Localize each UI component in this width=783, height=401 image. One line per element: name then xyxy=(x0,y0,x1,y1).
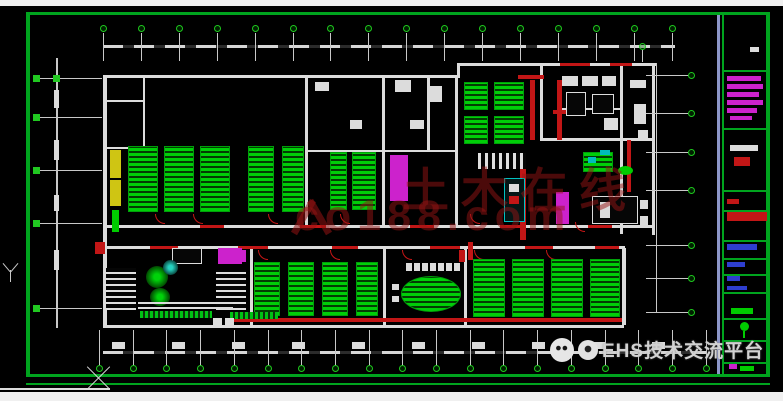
meeting-table xyxy=(464,116,488,144)
plan-shape xyxy=(595,246,619,249)
plan-shape xyxy=(225,318,234,326)
column xyxy=(530,80,535,140)
plan-shape xyxy=(600,202,610,218)
plan-shape xyxy=(734,157,750,166)
plan-shape xyxy=(53,75,60,82)
axis-bubble xyxy=(500,365,507,372)
plan-shape xyxy=(33,167,40,174)
plan-shape xyxy=(518,75,544,79)
chair xyxy=(438,263,444,271)
extension-line xyxy=(103,33,104,61)
workstation-cluster xyxy=(288,262,314,316)
fixture xyxy=(582,76,598,86)
chair xyxy=(454,263,460,271)
extension-line xyxy=(330,33,331,61)
page-bottom-strip xyxy=(0,392,783,401)
axis-bubble xyxy=(96,365,103,372)
workstation-cluster xyxy=(551,259,583,317)
chair xyxy=(640,216,648,225)
meeting-table xyxy=(464,82,488,110)
door-arc xyxy=(470,214,480,224)
extension-line xyxy=(436,330,437,366)
plan-shape xyxy=(622,248,626,325)
plan-shape xyxy=(731,308,753,314)
axis-bubble xyxy=(555,25,562,32)
door-arc xyxy=(575,222,585,232)
page-top-strip xyxy=(0,0,783,6)
hedge xyxy=(230,312,278,319)
plan-shape xyxy=(103,100,145,102)
frame-right xyxy=(766,12,770,377)
extension-line xyxy=(646,312,688,313)
plan-shape xyxy=(455,78,458,226)
meeting-table xyxy=(494,82,524,110)
cabinet xyxy=(556,192,569,224)
extension-line xyxy=(646,245,688,246)
titleblock-steel-line xyxy=(717,15,720,374)
chair xyxy=(422,263,428,271)
plan-shape xyxy=(588,157,596,163)
axis-bubble xyxy=(197,365,204,372)
plan-shape xyxy=(410,120,424,129)
extension-line xyxy=(470,330,471,366)
axis-bubble xyxy=(534,365,541,372)
frame-top xyxy=(26,12,770,15)
dimension-text xyxy=(352,342,365,349)
plan-shape xyxy=(383,249,386,325)
workstation-cluster xyxy=(164,146,194,212)
dimension-text xyxy=(532,342,545,349)
plan-shape xyxy=(638,130,648,138)
extension-line xyxy=(646,113,688,114)
workstation-cluster xyxy=(356,262,378,316)
cabinet xyxy=(218,248,242,264)
axis-bubble xyxy=(290,25,297,32)
axis-bubble xyxy=(669,365,676,372)
axis-bubble xyxy=(252,25,259,32)
plan-shape xyxy=(610,63,632,66)
dimension-text xyxy=(232,342,245,349)
staircase xyxy=(106,268,136,310)
plan-shape xyxy=(213,318,222,326)
extension-line xyxy=(255,33,256,61)
axis-bubble xyxy=(688,309,695,316)
plan-shape xyxy=(727,276,740,281)
plan-shape xyxy=(315,82,329,91)
plan-shape xyxy=(430,246,460,249)
extension-line xyxy=(402,330,403,366)
dimension-text xyxy=(112,342,125,349)
plant xyxy=(163,260,178,275)
axis-bubble xyxy=(327,25,334,32)
chair xyxy=(430,263,436,271)
plan-shape xyxy=(40,117,102,118)
plan-shape xyxy=(723,190,766,192)
plan-shape xyxy=(95,242,105,254)
axis-bubble xyxy=(467,365,474,372)
plan-shape xyxy=(723,258,766,260)
plan-shape xyxy=(727,108,757,113)
plan-shape xyxy=(500,225,526,228)
extension-line xyxy=(141,33,142,61)
dimension-text xyxy=(292,342,305,349)
axis-bubble xyxy=(688,242,695,249)
chair xyxy=(414,263,420,271)
extension-line xyxy=(444,33,445,61)
plan-shape xyxy=(740,322,749,331)
workstation-cluster xyxy=(200,146,230,212)
wechat-icon xyxy=(550,338,574,362)
extension-line xyxy=(482,33,483,61)
plan-shape xyxy=(740,366,754,371)
chair xyxy=(392,296,399,302)
plan-shape xyxy=(238,246,268,249)
titleblock-border xyxy=(722,15,724,374)
axis-bubble xyxy=(100,25,107,32)
axis-bubble xyxy=(517,25,524,32)
plan-shape xyxy=(457,63,460,78)
frame-left xyxy=(26,12,30,377)
workstation-cluster xyxy=(512,259,544,317)
plan-shape xyxy=(305,150,457,152)
edge-line xyxy=(0,388,110,390)
plan-shape xyxy=(723,292,766,294)
plan-shape xyxy=(727,199,739,204)
plan-shape xyxy=(727,262,745,267)
stair-treads xyxy=(478,153,526,169)
plan-shape xyxy=(727,100,763,105)
axis-bubble xyxy=(688,72,695,79)
door-arc xyxy=(193,214,203,224)
extension-line xyxy=(634,33,635,61)
chat-bubble-icon xyxy=(578,340,598,360)
sofa xyxy=(110,150,121,178)
plan-shape xyxy=(723,318,766,320)
sofa xyxy=(110,180,121,206)
plan-shape xyxy=(200,225,224,228)
door-arc xyxy=(340,214,350,224)
door-arc xyxy=(258,250,268,260)
workstation-cluster xyxy=(352,152,376,210)
door-arc xyxy=(155,214,165,224)
plan-shape xyxy=(40,78,102,79)
axis-bubble xyxy=(332,365,339,372)
extension-line xyxy=(520,33,521,61)
fixture xyxy=(604,118,618,130)
plan-shape xyxy=(33,220,40,227)
extension-line xyxy=(672,33,673,61)
dimension-text xyxy=(172,342,185,349)
exterior-wall xyxy=(652,63,655,235)
axis-bubble xyxy=(688,110,695,117)
workstation-cluster xyxy=(248,146,274,212)
plan-shape xyxy=(723,240,766,242)
brand-label: EHS技术交流平台 xyxy=(602,336,764,363)
plan-shape xyxy=(459,250,465,262)
reception-desk xyxy=(172,248,202,264)
plan-shape xyxy=(509,184,519,192)
extension-line xyxy=(217,33,218,61)
extension-line xyxy=(133,330,134,366)
plan-shape xyxy=(656,63,657,313)
plan-shape xyxy=(509,196,519,204)
brand-watermark: EHS技术交流平台 xyxy=(550,336,764,363)
chair xyxy=(446,263,452,271)
axis-bubble xyxy=(688,187,695,194)
plan-shape xyxy=(33,114,40,121)
plan-shape xyxy=(138,302,233,304)
meeting-table xyxy=(494,116,524,144)
extension-line xyxy=(369,330,370,366)
dimension-text xyxy=(472,342,485,349)
fixture xyxy=(566,92,586,116)
axis-bubble xyxy=(479,25,486,32)
axis-bubble xyxy=(433,365,440,372)
axis-bubble xyxy=(639,43,646,50)
plan-shape xyxy=(727,76,761,81)
axis-bubble xyxy=(265,365,272,372)
staircase xyxy=(216,270,246,310)
chair xyxy=(640,200,648,209)
axis-bubble xyxy=(231,365,238,372)
hedge xyxy=(140,311,212,318)
axis-bubble xyxy=(298,365,305,372)
axis-bubble xyxy=(688,149,695,156)
fixture xyxy=(592,94,614,114)
plan-shape xyxy=(350,120,362,129)
extension-line xyxy=(99,330,100,366)
chair xyxy=(392,284,399,290)
axis-bubble xyxy=(214,25,221,32)
plan-shape xyxy=(40,223,102,224)
plant xyxy=(618,166,633,175)
chair xyxy=(406,263,412,271)
watermark-logo xyxy=(307,199,332,235)
cabinet xyxy=(390,155,408,201)
plan-shape xyxy=(600,150,610,155)
axis-bubble xyxy=(163,365,170,372)
extension-line xyxy=(558,33,559,61)
axis-bubble xyxy=(441,25,448,32)
plan-shape xyxy=(112,210,119,232)
extension-line xyxy=(268,330,269,366)
plan-shape xyxy=(727,212,767,221)
workstation-cluster xyxy=(322,262,348,316)
axis-bubble xyxy=(176,25,183,32)
extension-line xyxy=(293,33,294,61)
plan-shape xyxy=(723,70,766,72)
fixture xyxy=(602,76,616,86)
extension-line xyxy=(596,33,597,61)
plan-shape xyxy=(54,140,59,160)
extension-line xyxy=(166,330,167,366)
plan-shape xyxy=(727,92,759,97)
door-arc xyxy=(330,250,340,260)
plan-shape xyxy=(560,63,590,66)
plan-shape xyxy=(382,78,385,226)
ucs-icon xyxy=(10,270,11,282)
plan-shape xyxy=(143,75,145,147)
workstation-cluster xyxy=(128,146,158,212)
workstation-cluster xyxy=(254,262,280,316)
extension-line xyxy=(179,33,180,61)
dimension-line xyxy=(103,45,675,48)
door-arc xyxy=(268,214,278,224)
plan-shape xyxy=(730,116,752,120)
axis-bubble xyxy=(602,365,609,372)
axis-bubble xyxy=(399,365,406,372)
axis-bubble xyxy=(703,365,710,372)
plan-shape xyxy=(630,80,646,88)
fixture xyxy=(562,76,578,86)
plan-shape xyxy=(730,145,758,151)
desk xyxy=(592,196,638,224)
extension-line xyxy=(646,75,688,76)
axis-bubble xyxy=(365,25,372,32)
extension-line xyxy=(646,152,688,153)
extension-line xyxy=(368,33,369,61)
axis-bubble xyxy=(568,365,575,372)
extension-line xyxy=(406,33,407,61)
frame-bottom-inner xyxy=(26,383,770,385)
plan-shape xyxy=(430,86,442,102)
axis-bubble xyxy=(688,275,695,282)
plan-shape xyxy=(395,80,411,92)
plan-shape xyxy=(54,90,59,108)
plan-shape xyxy=(634,104,646,124)
door-arc xyxy=(402,250,412,260)
workstation-cluster xyxy=(330,152,347,210)
plan-shape xyxy=(642,50,643,62)
workstation-cluster xyxy=(282,146,304,212)
axis-bubble xyxy=(403,25,410,32)
titleblock-mark xyxy=(750,47,759,52)
extension-line xyxy=(503,330,504,366)
plan-shape xyxy=(727,244,757,250)
plan-shape xyxy=(729,364,737,369)
dimension-text xyxy=(412,342,425,349)
axis-bubble xyxy=(631,25,638,32)
extension-line xyxy=(335,330,336,366)
plan-shape xyxy=(332,246,358,249)
plan-shape xyxy=(54,195,59,211)
cad-viewport: 土木在线 co188.com EHS技术交流平台 xyxy=(0,0,783,401)
red-wall xyxy=(228,318,622,322)
axis-bubble xyxy=(366,365,373,372)
extension-line xyxy=(646,190,688,191)
frame-bottom xyxy=(26,374,770,377)
plan-shape xyxy=(525,246,553,249)
exterior-wall xyxy=(103,325,624,328)
exterior-wall xyxy=(103,75,460,78)
plan-shape xyxy=(468,242,473,260)
workstation-cluster xyxy=(473,259,505,317)
axis-bubble xyxy=(669,25,676,32)
plan-shape xyxy=(723,128,766,130)
plan-shape xyxy=(40,170,102,171)
plan-shape xyxy=(33,75,40,82)
ucs-icon xyxy=(11,263,19,272)
workstation-cluster xyxy=(590,259,620,317)
plan-shape xyxy=(40,308,102,309)
corridor-wall xyxy=(103,225,655,228)
axis-bubble xyxy=(138,25,145,32)
plan-shape xyxy=(54,250,59,270)
plan-shape xyxy=(727,84,763,89)
plan-shape xyxy=(33,305,40,312)
extension-line xyxy=(200,330,201,366)
plan-shape xyxy=(410,225,434,228)
plan-shape xyxy=(727,286,747,290)
plan-shape xyxy=(138,307,233,309)
axis-bubble xyxy=(593,25,600,32)
extension-line xyxy=(646,278,688,279)
conference-table xyxy=(401,276,461,312)
axis-bubble xyxy=(635,365,642,372)
plan-shape xyxy=(588,225,612,228)
axis-bubble xyxy=(130,365,137,372)
